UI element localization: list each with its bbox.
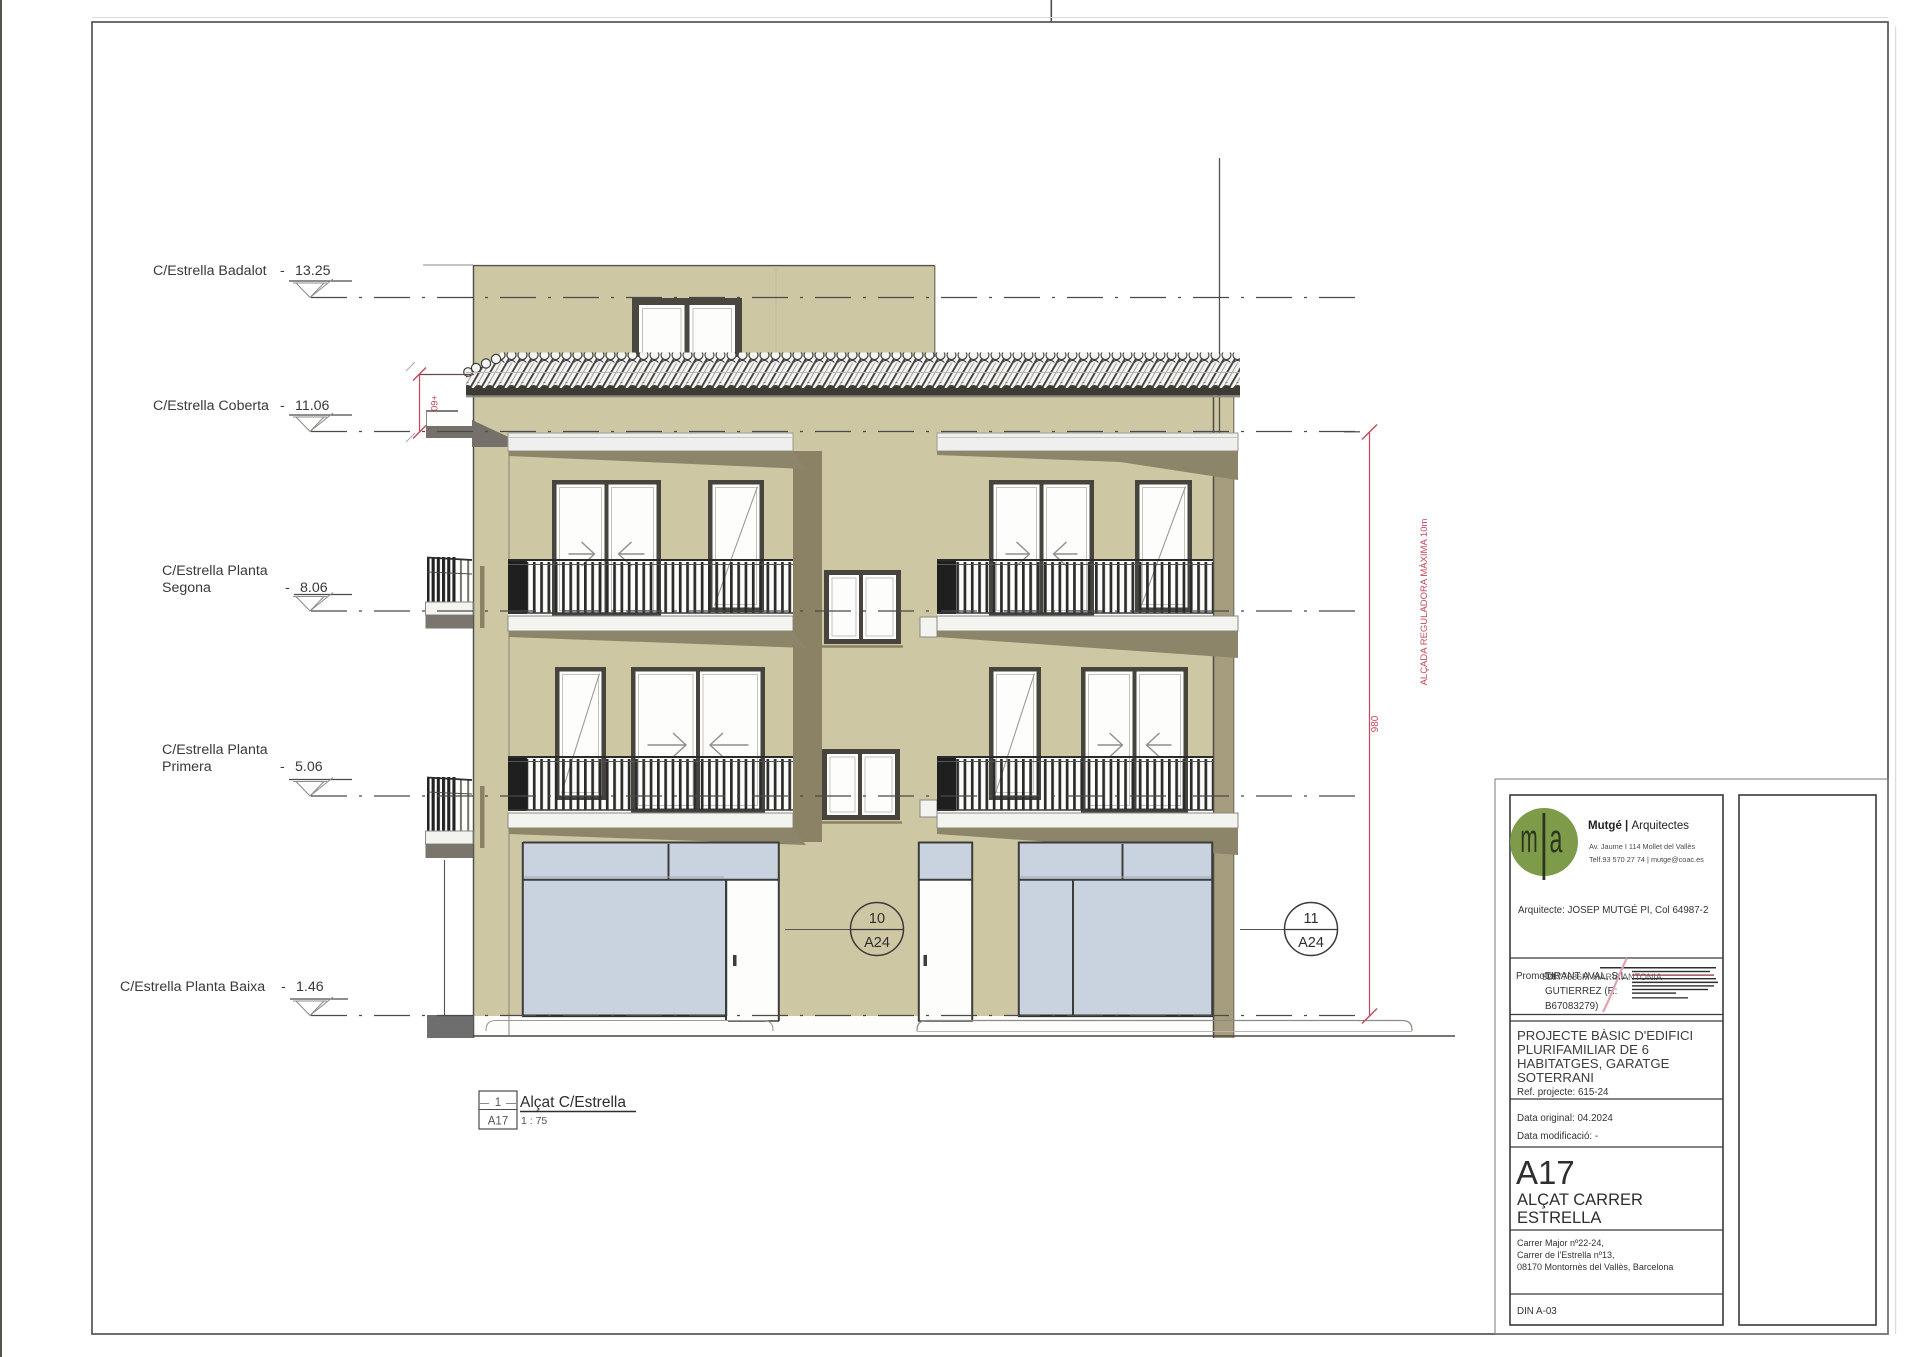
svg-text:Av. Jaume I 114 Mollet del Va: Av. Jaume I 114 Mollet del Vallès [1589, 842, 1695, 851]
svg-text:Data original: 04.2024: Data original: 04.2024 [1517, 1113, 1613, 1124]
svg-text:A24: A24 [864, 935, 890, 951]
svg-text:Arquitecte: JOSEP MUTGÉ PI, Co: Arquitecte: JOSEP MUTGÉ PI, Col 64987-2 [1518, 905, 1708, 916]
svg-text:-: - [280, 263, 285, 279]
svg-text:ESTRELLA: ESTRELLA [1517, 1209, 1601, 1227]
svg-text:DIN A-03: DIN A-03 [1517, 1306, 1557, 1317]
svg-text:Ref. projecte: 615-24: Ref. projecte: 615-24 [1517, 1087, 1609, 1098]
svg-text:+60: +60 [428, 395, 439, 411]
svg-text:52577686M MARIA ANTONIA: 52577686M MARIA ANTONIA [1542, 972, 1662, 982]
svg-text:ALÇAT CARRER: ALÇAT CARRER [1517, 1191, 1643, 1209]
svg-text:GUTIERREZ (R:: GUTIERREZ (R: [1545, 986, 1617, 997]
svg-text:C/Estrella Planta: C/Estrella Planta [162, 563, 268, 579]
svg-text:A24: A24 [1298, 935, 1324, 951]
svg-text:C/Estrella Planta Baixa: C/Estrella Planta Baixa [120, 979, 265, 995]
svg-text:SOTERRANI: SOTERRANI [1517, 1070, 1594, 1085]
svg-text:8.06: 8.06 [300, 580, 328, 596]
svg-text:Mutgé | Arquitectes: Mutgé | Arquitectes [1588, 820, 1689, 832]
svg-text:1 : 75: 1 : 75 [521, 1115, 547, 1127]
svg-text:A17: A17 [1516, 1154, 1575, 1191]
svg-text:PLURIFAMILIAR DE 6: PLURIFAMILIAR DE 6 [1517, 1042, 1649, 1057]
svg-text:Alçat C/Estrella: Alçat C/Estrella [520, 1094, 626, 1111]
svg-text:-: - [280, 398, 285, 414]
svg-text:C/Estrella Coberta: C/Estrella Coberta [153, 398, 269, 414]
svg-text:1: 1 [495, 1097, 501, 1109]
svg-text:10: 10 [869, 911, 885, 927]
svg-text:11: 11 [1303, 911, 1318, 927]
svg-text:-: - [281, 979, 286, 995]
svg-text:a: a [1550, 815, 1563, 860]
svg-text:Primera: Primera [162, 759, 212, 775]
svg-text:PROJECTE BÀSIC D'EDIFICI: PROJECTE BÀSIC D'EDIFICI [1517, 1028, 1693, 1043]
svg-text:-: - [280, 759, 285, 775]
svg-text:C/Estrella Planta: C/Estrella Planta [162, 742, 268, 758]
svg-text:08170 Montornès del Vallès, Ba: 08170 Montornès del Vallès, Barcelona [1517, 1262, 1673, 1272]
svg-text:Carrer de l'Estrella nº13,: Carrer de l'Estrella nº13, [1517, 1250, 1615, 1260]
svg-text:Segona: Segona [162, 580, 211, 596]
svg-text:Data modificació: -: Data modificació: - [1517, 1131, 1598, 1142]
svg-text:B67083279): B67083279) [1545, 1001, 1598, 1012]
svg-text:-: - [285, 580, 290, 596]
svg-text:980: 980 [1370, 715, 1381, 732]
svg-text:1.46: 1.46 [296, 979, 324, 995]
svg-text:C/Estrella Badalot: C/Estrella Badalot [153, 263, 267, 279]
svg-text:5.06: 5.06 [295, 759, 323, 775]
svg-text:Telf.93 570 27 74 | mutge@coac: Telf.93 570 27 74 | mutge@coac.es [1589, 855, 1704, 864]
svg-text:A17: A17 [488, 1116, 508, 1128]
svg-text:13.25: 13.25 [295, 263, 331, 279]
svg-text:Carrer Major nº22-24,: Carrer Major nº22-24, [1517, 1238, 1604, 1248]
svg-text:m: m [1520, 816, 1537, 861]
svg-text:ALÇADA REGULADORA MÀXIMA 10m: ALÇADA REGULADORA MÀXIMA 10m [1419, 519, 1430, 686]
svg-text:11.06: 11.06 [295, 398, 330, 414]
svg-text:HABITATGES, GARATGE: HABITATGES, GARATGE [1517, 1056, 1670, 1071]
